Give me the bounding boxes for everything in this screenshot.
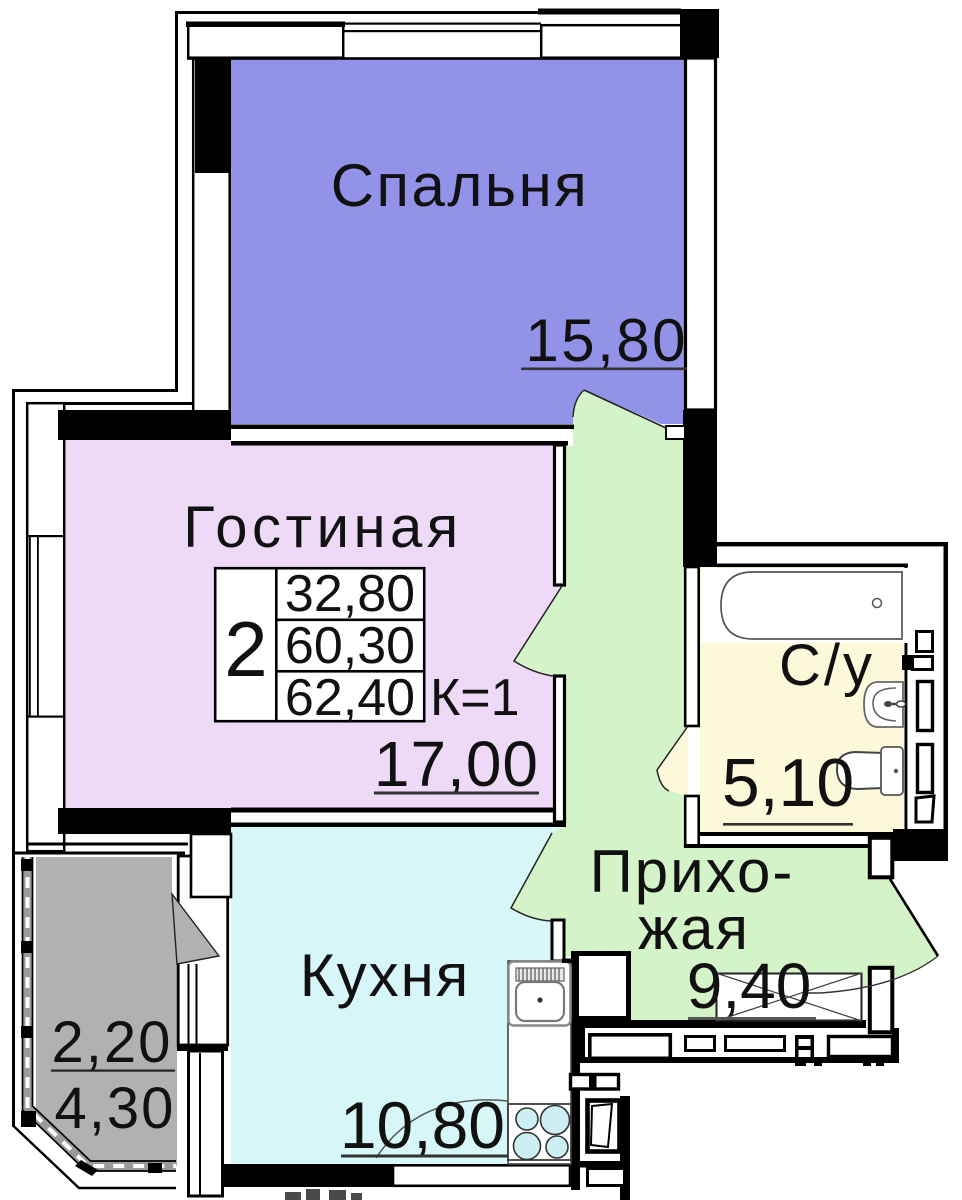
svg-text:2,20: 2,20 <box>52 1010 173 1075</box>
svg-text:9,40: 9,40 <box>687 950 812 1022</box>
svg-text:К=1: К=1 <box>430 669 520 727</box>
svg-text:10,80: 10,80 <box>340 1088 505 1162</box>
svg-text:2: 2 <box>224 605 267 693</box>
svg-text:Спальня: Спальня <box>331 152 590 219</box>
svg-text:Гостиная: Гостиная <box>183 495 462 560</box>
svg-text:32,80: 32,80 <box>285 565 415 623</box>
svg-text:17,00: 17,00 <box>374 728 539 800</box>
svg-text:С/у: С/у <box>779 633 875 698</box>
svg-text:Кухня: Кухня <box>300 942 471 1009</box>
svg-text:15,80: 15,80 <box>525 307 688 374</box>
svg-text:62,40: 62,40 <box>285 669 415 727</box>
svg-text:4,30: 4,30 <box>55 1076 176 1141</box>
svg-text:5,10: 5,10 <box>722 745 854 821</box>
svg-text:60,30: 60,30 <box>285 617 415 675</box>
